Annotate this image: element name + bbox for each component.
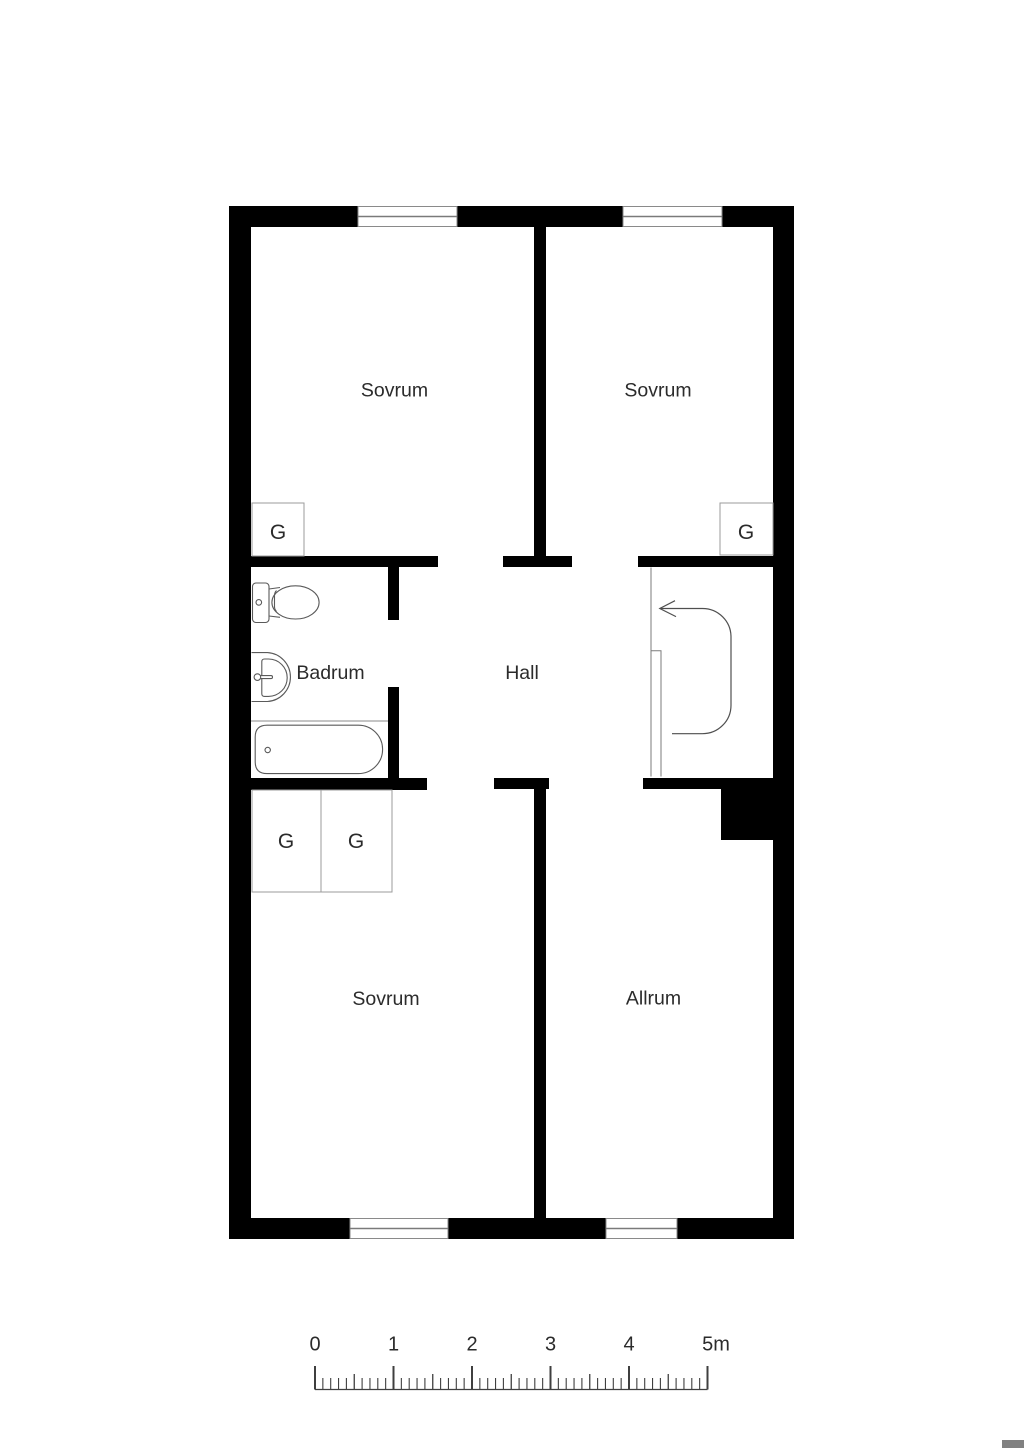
svg-text:G: G bbox=[738, 521, 754, 544]
svg-text:G: G bbox=[348, 830, 364, 853]
svg-text:4: 4 bbox=[623, 1333, 634, 1355]
svg-text:Sovrum: Sovrum bbox=[352, 988, 419, 1010]
svg-text:5m: 5m bbox=[702, 1333, 730, 1355]
svg-text:Badrum: Badrum bbox=[296, 662, 364, 684]
svg-text:0: 0 bbox=[309, 1333, 320, 1355]
svg-text:Allrum: Allrum bbox=[626, 988, 681, 1010]
svg-text:Hall: Hall bbox=[505, 662, 539, 684]
svg-text:G: G bbox=[270, 521, 286, 544]
svg-text:1: 1 bbox=[388, 1333, 399, 1355]
svg-text:2: 2 bbox=[466, 1333, 477, 1355]
svg-text:G: G bbox=[278, 830, 294, 853]
svg-text:Sovrum: Sovrum bbox=[624, 379, 691, 401]
svg-text:3: 3 bbox=[545, 1333, 556, 1355]
svg-text:Sovrum: Sovrum bbox=[361, 379, 428, 401]
